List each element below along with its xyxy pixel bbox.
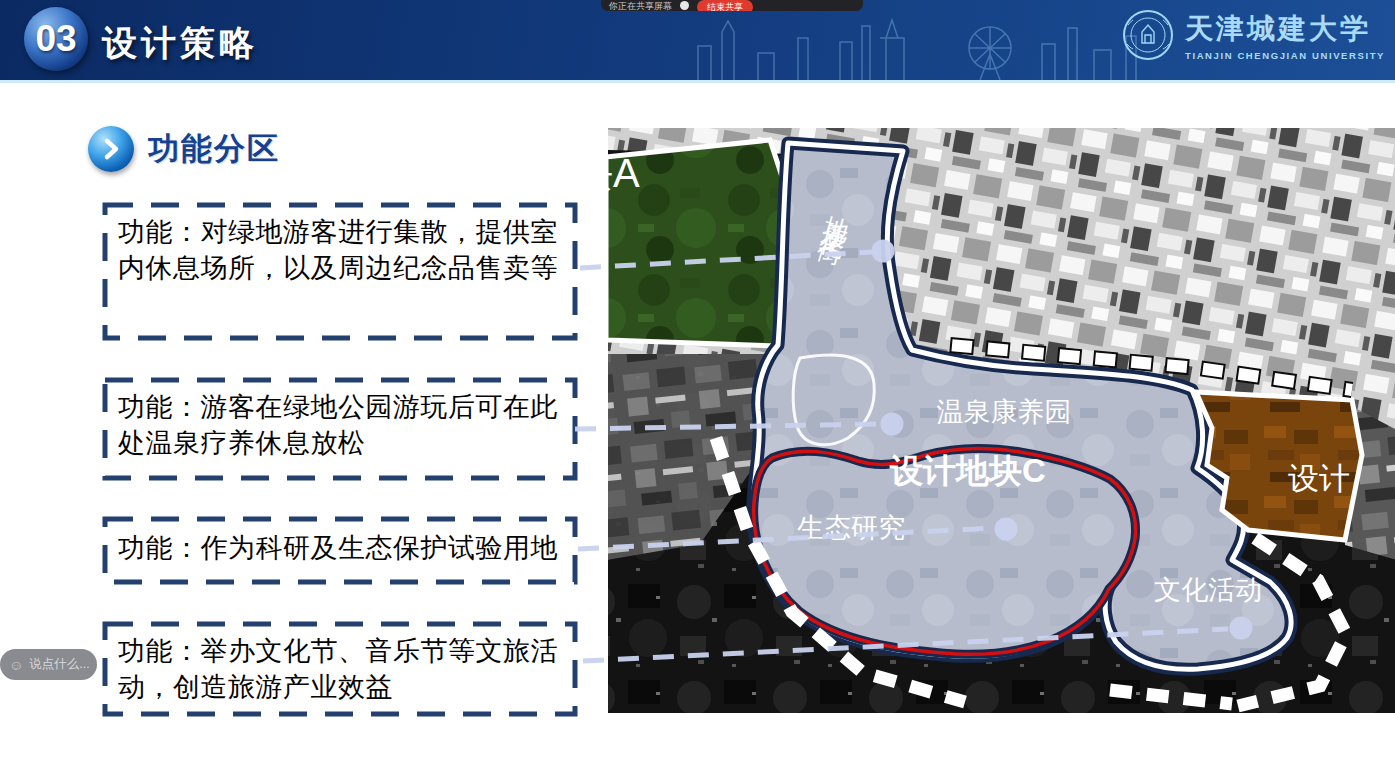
label-plot-b: 设计 (1288, 461, 1350, 496)
section-title-text: 功能分区 (148, 128, 280, 170)
section-number: 03 (35, 18, 76, 60)
emoji-smiley-icon[interactable]: ☺ (9, 658, 23, 672)
stop-share-button[interactable]: 结束共享 (697, 0, 753, 11)
label-plot-c: 设计地块C (889, 452, 1046, 489)
function-box-4: 功能：举办文化节、音乐节等文旅活动，创造旅游产业效益 (105, 624, 575, 714)
section-number-badge: 03 (24, 7, 88, 71)
screen-share-toolbar[interactable]: 你正在共享屏幕 结束共享 (601, 0, 863, 11)
university-logo: 天津城建大学 TIANJIN CHENGJIAN UNIVERSITY (1121, 8, 1385, 62)
cityscape-watermark (690, 8, 1160, 80)
label-hot-spring: 温泉康养园 (937, 397, 1072, 427)
share-status-label: 你正在共享屏幕 (609, 0, 672, 11)
function-box-2: 功能：游客在绿地公园游玩后可在此处温泉疗养休息放松 (105, 380, 575, 478)
university-seal-icon (1121, 8, 1175, 62)
page-title: 设计策略 (102, 20, 258, 67)
slide-header: 03 设计策略 天津城建大学 TIANJIN CHENGJIAN UNIVERS… (0, 0, 1395, 83)
university-name-cn: 天津城建大学 (1185, 10, 1371, 48)
camera-toggle-icon[interactable] (680, 1, 689, 10)
slide-screen-share: 03 设计策略 天津城建大学 TIANJIN CHENGJIAN UNIVERS… (0, 0, 1395, 768)
function-box-3: 功能：作为科研及生态保护试验用地 (105, 519, 575, 582)
label-plot-a: 块A (608, 151, 640, 195)
chevron-right-icon (88, 126, 134, 172)
chat-placeholder: 说点什么... (29, 656, 89, 673)
function-box-1: 功能：对绿地游客进行集散，提供室内休息场所，以及周边纪念品售卖等 (105, 205, 575, 338)
masterplan-satellite-map: 块A 地质文化街 温泉康养园 设计地块C 生态研究 文化活动 设计 (608, 128, 1395, 713)
university-name-en: TIANJIN CHENGJIAN UNIVERSITY (1185, 50, 1385, 61)
chat-input[interactable]: ☺ 说点什么... (0, 649, 97, 680)
label-culture: 文化活动 (1154, 575, 1262, 605)
section-heading: 功能分区 (88, 126, 280, 172)
label-ecology: 生态研究 (797, 513, 905, 543)
